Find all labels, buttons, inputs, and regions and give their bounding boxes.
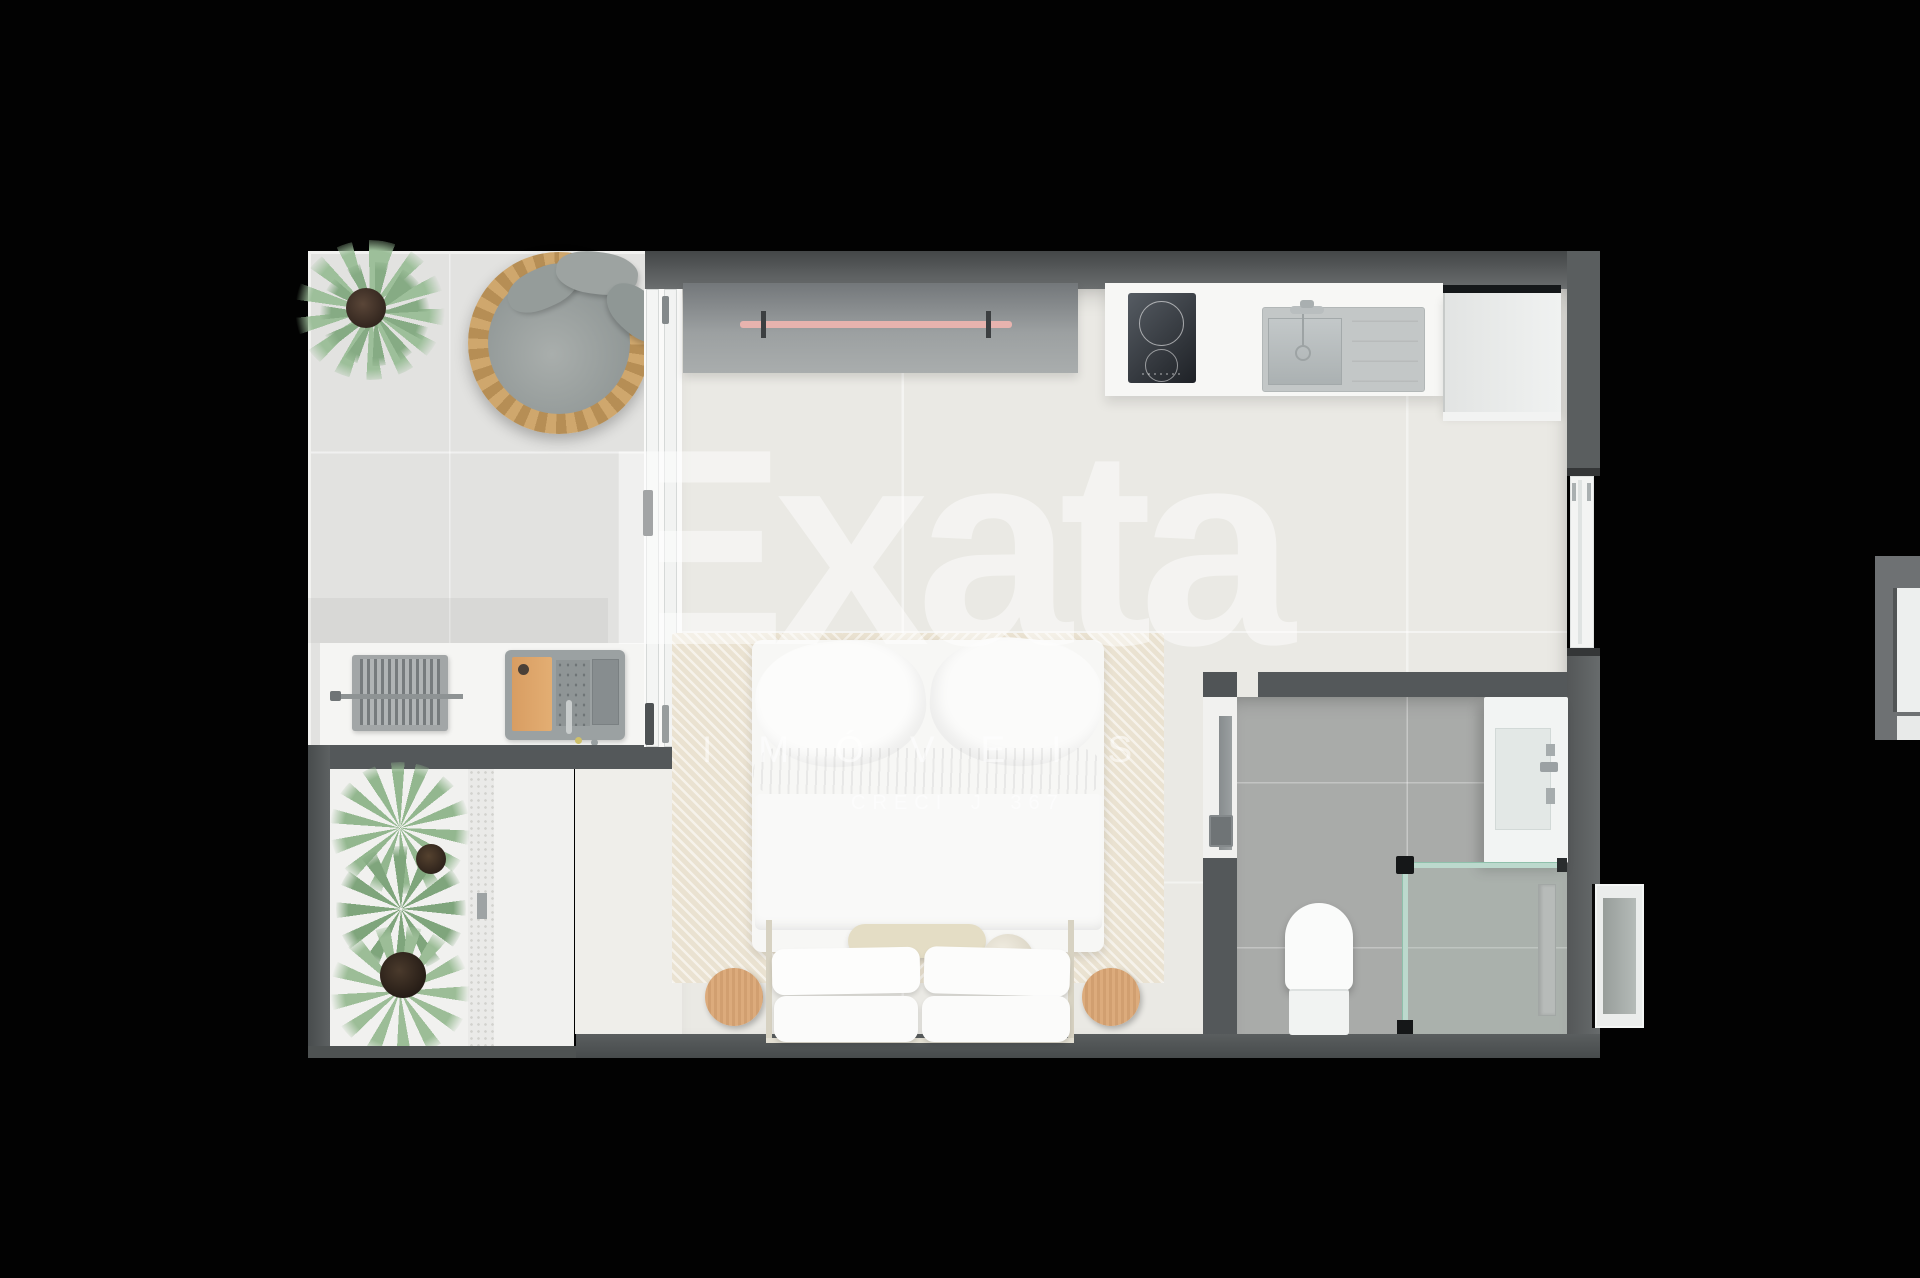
bed-pillow [772,947,921,996]
grill-grate [360,659,440,725]
adjacent-unit-window [1897,588,1920,712]
door-handle [1540,762,1558,772]
refrigerator-kick [1443,412,1561,421]
bed-pillow [923,946,1070,997]
sink-basin [592,659,619,725]
bed-frame-rail [766,920,772,1042]
shower-glass-vertical [1402,868,1408,1028]
sink-drainboard-lines [1352,320,1418,382]
cooktop-burner [1139,301,1184,346]
glass-door-handle [662,705,669,743]
wardrobe-shelf [683,283,1078,373]
outdoor-faucet [566,700,572,734]
wall-left [308,745,330,1058]
glass-door-handle [643,490,653,536]
window-jamb-bottom [1567,648,1600,656]
wall-balcony-divider [308,745,682,769]
entry-door-panel [1603,898,1636,1014]
rail-bracket [986,311,991,338]
grill-skewer [333,694,463,699]
door-hinge [1546,744,1555,756]
pocket-door-handle [1209,815,1233,847]
shower-glass-clamp [1557,858,1567,872]
right-wall-window [1570,476,1594,648]
interior-floor-left-strip [575,769,682,1034]
terrace-plant-pot [346,288,386,328]
cooktop-burner [1145,349,1178,382]
toilet-bowl [1285,903,1353,991]
window-handle [1572,483,1576,501]
rail-bracket [761,311,766,338]
kitchen-faucet-neck [1300,300,1314,308]
glass-door-handle [645,703,654,745]
floor-plan-render: Exata IMÓVEIS CRECI J 367 [0,0,1920,1278]
adjacent-unit-sill [1897,716,1920,740]
window-glass-line [1578,480,1582,644]
bedside-table-left [705,968,763,1026]
shower-glass-horizontal [1400,862,1567,868]
glass-door-handle [662,296,669,324]
soap-dot [575,737,582,744]
bathroom-top-wall [1258,672,1567,697]
window-jamb-top [1567,468,1600,476]
sink-drain-ring [1295,345,1311,361]
bathroom-door-panel [1495,728,1551,830]
bedside-table-right [1082,968,1140,1026]
shower-glass-foot [1397,1020,1413,1034]
shower-niche [1538,884,1556,1016]
sink-drainer [556,660,590,726]
clothes-rail [740,321,1012,328]
wall-bed-bath [1203,858,1237,1034]
shower-hinge-block [1396,856,1414,874]
terrace-floor-shade [308,598,608,643]
garden-plant-pot [380,952,426,998]
toilet-tank [1289,989,1349,1035]
refrigerator-cabinet [1443,293,1561,412]
garden-plant-pot [416,844,446,874]
bed-pillow [922,996,1070,1042]
pocket-door-stub-top [1203,672,1237,697]
rolled-blanket [753,748,1103,796]
board-hole [518,664,529,675]
door-hinge [1546,788,1555,804]
grill-skewer-handle [330,691,341,701]
bed-duvet [755,794,1102,930]
wall-bottom [576,1034,1600,1058]
cooktop-controls [1140,372,1184,376]
sink-chain [1302,314,1304,346]
window-handle [1587,483,1591,501]
garden-bottom-wall [308,1046,576,1058]
fridge-gap [1443,285,1561,293]
pebble-strip-clip [477,893,487,919]
wall-right-upper [1567,251,1600,468]
bed-pillow [774,996,918,1042]
